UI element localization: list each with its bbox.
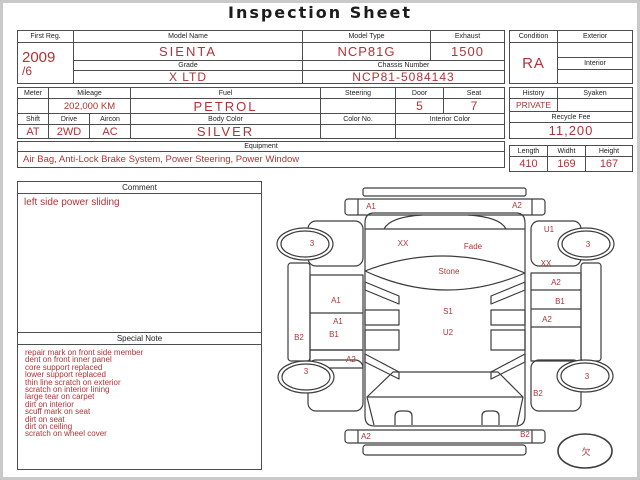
model-type-value: NCP81G <box>303 43 431 61</box>
damage-code-label: S1 <box>443 307 453 316</box>
equipment-label: Equipment <box>18 142 504 152</box>
rear-bumper <box>345 430 545 443</box>
steering-value <box>321 99 396 114</box>
rear-strip <box>363 445 526 455</box>
model-name-value: SIENTA <box>74 43 303 61</box>
damage-code-label: Stone <box>439 267 460 276</box>
equipment-value: Air Bag, Anti-Lock Brake System, Power S… <box>18 152 504 167</box>
right-step-1 <box>491 310 525 325</box>
chassis-number-label: Chassis Number <box>303 61 504 71</box>
left-step-1 <box>365 310 399 325</box>
first-reg-year: 2009 <box>22 50 55 65</box>
roof-strip <box>363 188 526 196</box>
damage-code-label: A2 <box>346 355 356 364</box>
color-no-label: Color No. <box>321 114 396 125</box>
wheels-group <box>277 228 614 468</box>
damage-code-label: 3 <box>304 367 309 376</box>
width-value: 169 <box>548 157 586 171</box>
first-reg-month: /6 <box>22 65 32 77</box>
body-color-label: Body Color <box>131 114 321 125</box>
right-door-dividers <box>531 290 581 327</box>
damage-code-label: A2 <box>512 201 522 210</box>
condition-label: Condition <box>510 31 558 43</box>
left-step-2 <box>365 330 399 350</box>
right-headlight-arc <box>468 215 506 229</box>
condition-table: Condition RA Exterior Interior <box>509 30 633 84</box>
left-headlight-arc <box>384 215 422 229</box>
right-a-pillar <box>491 282 525 304</box>
exhaust-label: Exhaust <box>431 31 504 43</box>
damage-code-label: A1 <box>333 317 343 326</box>
damage-code-label: B1 <box>555 297 565 306</box>
hatch-sides <box>367 397 523 425</box>
spec-table: Meter Mileage Fuel Steering Door Seat 20… <box>17 87 505 139</box>
first-reg-value: 2009 /6 <box>18 43 74 83</box>
exterior-value <box>558 43 632 58</box>
seat-value: 7 <box>444 99 504 114</box>
damage-labels-group: A1A23XXFadeU13StoneXXA2A1B1S1A1A2B2B1U2A… <box>294 201 591 457</box>
grade-value: X LTD <box>74 71 303 83</box>
door-label: Door <box>396 88 444 99</box>
dimensions-table: Length Widht Height 410 169 167 <box>509 145 633 172</box>
condition-value: RA <box>510 43 558 83</box>
interior-label: Interior <box>558 58 632 70</box>
meter-label: Meter <box>18 88 49 99</box>
mileage-value: 202,000 KM <box>49 99 131 114</box>
history-value: PRIVATE <box>510 99 558 112</box>
right-taillight <box>482 411 499 425</box>
interior-color-value <box>396 125 504 138</box>
left-c-pillar <box>365 354 399 379</box>
aircon-value: AC <box>90 125 131 138</box>
mileage-label: Mileage <box>49 88 131 99</box>
fuel-value: PETROL <box>131 99 321 114</box>
color-no-value <box>321 125 396 138</box>
history-table: History Syaken PRIVATE Recycle Fee 11,20… <box>509 87 633 139</box>
interior-value <box>558 70 632 83</box>
damage-code-label: A1 <box>331 296 341 305</box>
car-damage-diagram: A1A23XXFadeU13StoneXXA2A1B1S1A1A2B2B1U2A… <box>268 178 640 478</box>
damage-code-label: 3 <box>585 372 590 381</box>
model-name-label: Model Name <box>74 31 303 43</box>
meter-value <box>18 99 49 114</box>
chassis-number-value: NCP81-5084143 <box>303 71 504 83</box>
syaken-label: Syaken <box>558 88 632 99</box>
damage-code-label: A2 <box>542 315 552 324</box>
fuel-label: Fuel <box>131 88 321 99</box>
comment-label: Comment <box>18 182 261 194</box>
damage-code-label: XX <box>398 239 409 248</box>
left-rocker <box>288 263 310 361</box>
special-note-content: repair mark on front side memberdent on … <box>18 345 261 469</box>
height-label: Height <box>586 146 632 157</box>
drive-value: 2WD <box>49 125 90 138</box>
damage-code-label: B2 <box>533 389 543 398</box>
front-left-wheel-inner <box>281 231 329 257</box>
recycle-fee-label: Recycle Fee <box>510 112 632 123</box>
rear-bumper-ends <box>358 430 532 443</box>
exterior-label: Exterior <box>558 31 632 43</box>
shift-label: Shift <box>18 114 49 125</box>
damage-code-label: A1 <box>366 202 376 211</box>
right-rocker <box>581 263 601 361</box>
damage-code-label: U2 <box>443 328 454 337</box>
right-step-2 <box>491 330 525 350</box>
vehicle-id-table: First Reg. 2009 /6 Model Name SIENTA Gra… <box>17 30 505 84</box>
comment-content: left side power sliding <box>18 194 261 332</box>
rear-window <box>367 372 523 397</box>
syaken-value <box>558 99 632 112</box>
shift-value: AT <box>18 125 49 138</box>
comment-line: left side power sliding <box>24 197 261 209</box>
aircon-label: Aircon <box>90 114 131 125</box>
damage-code-label: 欠 <box>581 446 590 457</box>
damage-code-label: A2 <box>551 278 561 287</box>
exhaust-value: 1500 <box>431 43 504 61</box>
history-label: History <box>510 88 558 99</box>
model-type-label: Model Type <box>303 31 431 43</box>
damage-code-label: XX <box>541 259 552 268</box>
special-note-label: Special Note <box>18 332 261 345</box>
grade-label: Grade <box>74 61 303 71</box>
left-a-pillar <box>365 282 399 304</box>
height-value: 167 <box>586 157 632 171</box>
damage-code-label: U1 <box>544 225 555 234</box>
damage-code-label: Fade <box>464 242 483 251</box>
notes-panel: Comment left side power sliding Special … <box>17 181 262 470</box>
steering-label: Steering <box>321 88 396 99</box>
body-outline <box>365 213 525 426</box>
door-value: 5 <box>396 99 444 114</box>
damage-code-label: B1 <box>329 330 339 339</box>
page-title: Inspection Sheet <box>0 3 640 22</box>
right-c-pillar <box>491 354 525 379</box>
width-label: Widht <box>548 146 586 157</box>
special-note-line: scratch on wheel cover <box>25 430 261 437</box>
left-taillight <box>395 411 412 425</box>
damage-code-label: A2 <box>361 432 371 441</box>
length-value: 410 <box>510 157 548 171</box>
interior-color-label: Interior Color <box>396 114 504 125</box>
damage-code-label: 3 <box>310 239 315 248</box>
equipment-table: Equipment Air Bag, Anti-Lock Brake Syste… <box>17 141 505 168</box>
seat-label: Seat <box>444 88 504 99</box>
inspection-sheet-page: Inspection Sheet First Reg. 2009 /6 Mode… <box>0 0 640 480</box>
body-color-value: SILVER <box>131 125 321 138</box>
first-reg-label: First Reg. <box>18 31 74 43</box>
length-label: Length <box>510 146 548 157</box>
drive-label: Drive <box>49 114 90 125</box>
damage-code-label: B2 <box>520 430 530 439</box>
recycle-fee-value: 11,200 <box>510 123 632 138</box>
damage-code-label: 3 <box>586 240 591 249</box>
damage-code-label: B2 <box>294 333 304 342</box>
